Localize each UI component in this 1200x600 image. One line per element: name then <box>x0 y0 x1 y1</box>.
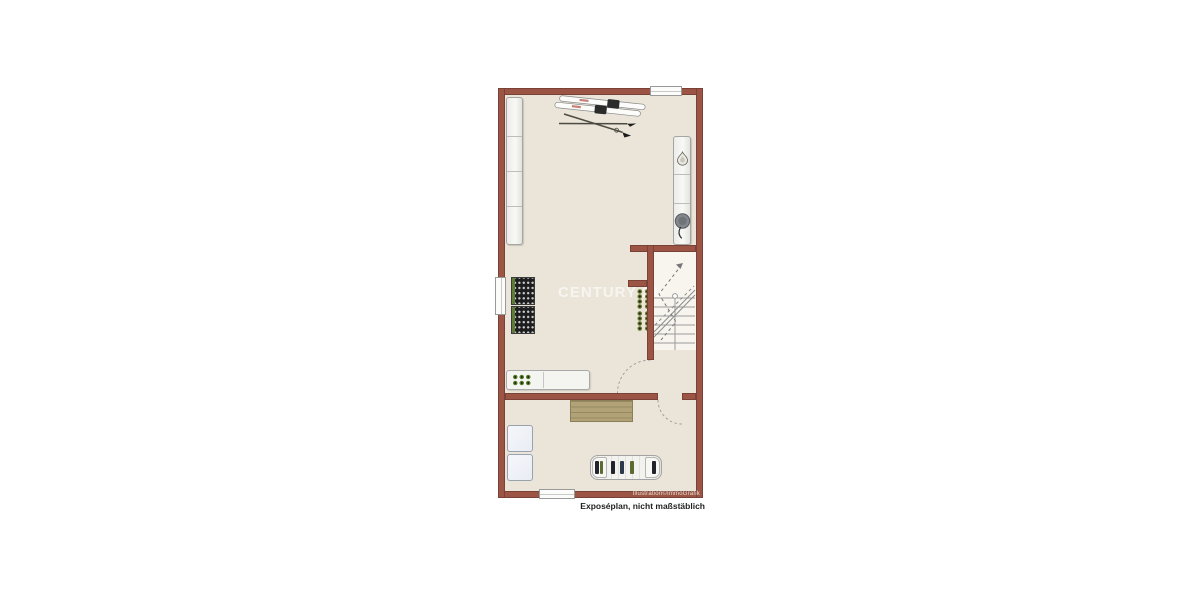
wardrobe-cabinet <box>506 97 523 245</box>
cabinet-divider <box>674 203 690 204</box>
cabinet-divider <box>674 174 690 175</box>
page: { "page": { "background": "#ffffff" }, "… <box>0 0 1200 600</box>
wood-workbench <box>570 400 633 422</box>
heater-cabinet <box>673 136 691 245</box>
storage-rack-icon <box>512 307 534 333</box>
tool-item-icon <box>620 461 624 474</box>
floor-plan: CENTURY 21 <box>498 88 703 498</box>
storage-rack-icon <box>512 278 534 304</box>
illustration-credit: Illustration©ImmoGrafik <box>633 491 700 498</box>
plan-caption: Exposéplan, nicht maßstäblich <box>498 501 705 511</box>
window-icon-top <box>650 86 682 96</box>
plant-dots-icon <box>512 374 532 386</box>
interior-wall-middle <box>505 393 658 400</box>
tool-item-icon <box>600 461 604 474</box>
cabinet-divider <box>507 206 522 207</box>
window-glass-line <box>501 278 502 314</box>
interior-wall-stair-side <box>647 245 654 360</box>
window-glass-line <box>540 494 574 495</box>
window-icon-left <box>495 277 506 315</box>
dryer <box>507 454 533 481</box>
interior-wall-middle-stub <box>682 393 696 400</box>
tool-item-icon <box>611 461 615 474</box>
sideboard-divider <box>543 372 544 388</box>
washing-machine <box>507 425 533 452</box>
window-glass-line <box>651 91 681 92</box>
interior-wall-stub <box>628 280 647 287</box>
interior-wall-stair-top <box>630 245 696 252</box>
tool-item-icon <box>630 461 634 474</box>
cabinet-divider <box>507 171 522 172</box>
tool-item-icon <box>652 461 656 474</box>
tool-item-icon <box>595 461 599 474</box>
staircase-floor <box>654 252 696 350</box>
cabinet-divider <box>507 136 522 137</box>
sideboard <box>506 370 590 390</box>
outer-wall-right <box>696 88 703 498</box>
tool-bench <box>590 455 662 480</box>
window-icon-bottom <box>539 489 575 499</box>
